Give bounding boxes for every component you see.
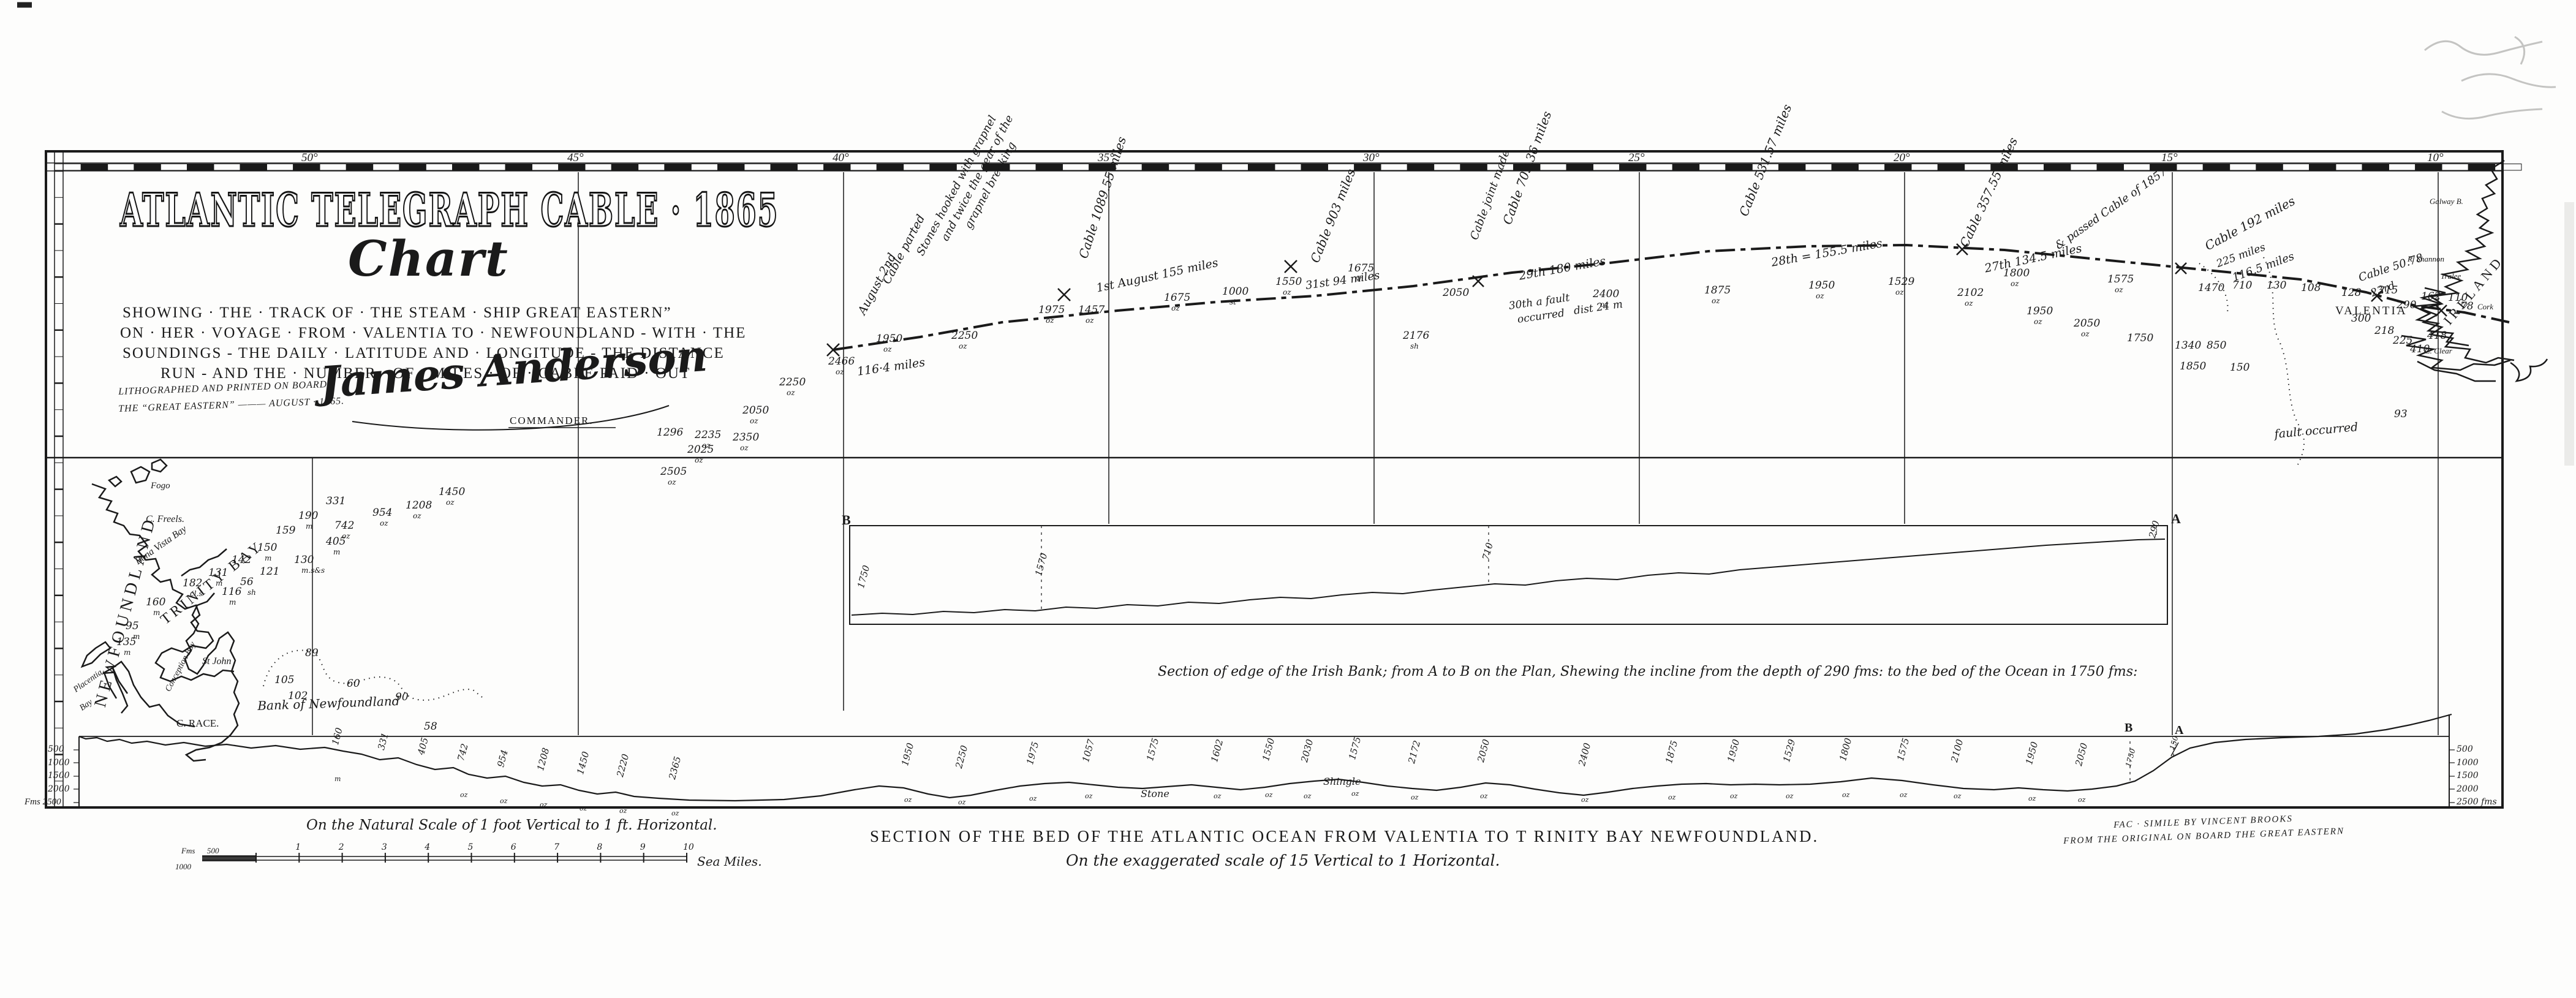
sounding-value: 2466	[828, 357, 855, 367]
sounding-value: 2050	[2074, 319, 2100, 329]
sounding-value: 2400	[1593, 289, 1619, 300]
sounding-value: 93	[2394, 409, 2408, 420]
sounding-value: 121	[260, 567, 279, 577]
sounding-value: 710	[2232, 281, 2252, 291]
inset-point-b: B	[842, 513, 851, 527]
sounding-value: 182	[183, 578, 202, 589]
sounding-value: 1470	[2198, 283, 2224, 293]
scale-tick-number: 8	[597, 843, 602, 852]
place-label: C. Freels.	[146, 515, 184, 524]
profile-right-axis-label: 1000	[2457, 758, 2479, 767]
profile-depth-bottom-type: oz	[1786, 793, 1793, 800]
sounding-value: 1850	[2180, 361, 2206, 372]
sounding-bottom-type: oz	[883, 346, 892, 353]
sounding-bottom-type: oz	[740, 444, 749, 452]
sounding-value: 190	[298, 511, 318, 521]
sounding-value: 1450	[439, 487, 465, 497]
sounding-value: 1208	[406, 501, 432, 511]
scale-tick-number: 3	[382, 843, 387, 852]
profile-depth-bottom-type: oz	[2078, 796, 2085, 803]
longitude-label: 50°	[301, 152, 318, 164]
sounding-value: 142	[232, 555, 251, 565]
sounding-value: 1975	[1038, 305, 1065, 316]
profile-depth-bottom-type: oz	[904, 796, 912, 803]
sounding-value: 1950	[1808, 281, 1835, 291]
irish-bank-inset	[850, 526, 2167, 624]
title-line-3: SHOWING · THE · TRACK OF · THE STEAM · S…	[123, 305, 672, 320]
bank-contours	[263, 257, 2304, 700]
sounding-bottom-type: oz	[695, 456, 703, 464]
chart-title: ATLANTIC TELEGRAPH CABLE · 1865	[120, 187, 779, 233]
sounding-value: 159	[276, 526, 295, 536]
place-label: Galway B.	[2430, 197, 2463, 205]
sounding-bottom-type: cl.s	[190, 590, 203, 597]
newfoundland-coastline	[82, 459, 239, 761]
sounding-value: 290	[2397, 300, 2416, 311]
sounding-value: 1800	[2003, 268, 2030, 279]
sounding-value: 300	[2351, 314, 2371, 324]
sounding-bottom-type: oz	[750, 417, 758, 425]
place-label: Tralee	[2441, 272, 2461, 280]
sounding-bottom-type: oz	[2011, 280, 2019, 287]
sounding-value: 742	[334, 521, 354, 531]
sounding-bottom-type: oz	[702, 442, 711, 449]
inset-caption: Section of edge of the Irish Bank; from …	[1158, 665, 2137, 679]
longitude-label: 15°	[2161, 152, 2178, 164]
scale-fms-label: Fms	[181, 847, 195, 855]
sounding-value: 954	[372, 508, 392, 518]
sounding-bottom-type: m	[333, 548, 340, 556]
sounding-value: 2350	[733, 433, 759, 443]
sounding-bottom-type: oz	[1816, 292, 1824, 300]
sounding-value: 1675	[1164, 293, 1190, 303]
scale-1000-label: 1000	[175, 863, 191, 871]
longitude-label: 25°	[1628, 152, 1645, 164]
sounding-bottom-type: m	[124, 649, 130, 656]
longitude-label: 40°	[833, 152, 849, 164]
sounding-bottom-type: oz	[1895, 289, 1904, 296]
sounding-value: 160	[146, 597, 165, 608]
sounding-bottom-type: m	[265, 554, 271, 562]
exaggerated-scale-caption: On the exaggerated scale of 15 Vertical …	[1066, 853, 1500, 868]
sounding-value: 116	[222, 587, 241, 597]
sounding-bottom-type: m	[306, 523, 312, 530]
sounding-value: 218	[2374, 326, 2394, 336]
sounding-value: 2235	[695, 430, 721, 440]
sounding-bottom-type: oz	[1046, 317, 1054, 324]
sounding-bottom-type: oz	[836, 368, 844, 376]
scale-tick-number: 6	[511, 843, 516, 852]
sounding-value: 150	[2230, 363, 2249, 373]
sounding-value: 95	[126, 621, 139, 632]
profile-right-axis-label: 2000	[2457, 785, 2479, 793]
sounding-value: 1750	[2127, 333, 2153, 344]
scale-tick-number: 7	[554, 843, 559, 852]
sounding-bottom-type: oz	[2081, 330, 2090, 338]
scale-tick-number: 5	[468, 843, 474, 852]
sounding-bottom-type: st	[1229, 298, 1236, 306]
sounding-value: 1457	[1078, 305, 1105, 316]
sounding-value: 1340	[2175, 341, 2201, 351]
sounding-bottom-type: sh	[1410, 342, 1419, 350]
sounding-bottom-type: oz	[446, 499, 455, 506]
profile-depth-bottom-type: oz	[1954, 793, 1961, 800]
sea-miles-label: Sea Miles.	[697, 855, 762, 868]
sounding-value: 2050	[742, 406, 769, 416]
natural-scale-caption: On the Natural Scale of 1 foot Vertical …	[306, 818, 717, 833]
sounding-value: 2505	[660, 467, 687, 477]
sounding-bottom-type: m	[229, 599, 236, 606]
profile-depth-bottom-type: m	[334, 776, 341, 782]
profile-depth-bottom-type: oz	[1581, 796, 1588, 803]
sounding-value: 78	[2460, 301, 2474, 312]
section-title: SECTION OF THE BED OF THE ATLANTIC OCEAN…	[870, 828, 1819, 845]
profile-depth-bottom-type: oz	[1085, 793, 1092, 800]
profile-depth-bottom-type: oz	[1900, 792, 1907, 798]
commander-title: COMMANDER.	[510, 415, 594, 426]
sounding-bottom-type: oz	[1965, 300, 1973, 307]
sounding-bottom-type: oz	[1283, 289, 1291, 296]
longitude-label: 10°	[2427, 152, 2444, 164]
profile-bed-word: Stone	[1141, 789, 1169, 799]
profile-right-axis-label: 2500 fms	[2457, 798, 2497, 806]
sounding-value: 131	[208, 568, 228, 578]
profile-depth-bottom-type: oz	[671, 810, 679, 817]
sounding-value: 1675	[1348, 263, 1374, 274]
longitude-graduation-band	[55, 164, 2521, 171]
profile-depth-bottom-type: oz	[540, 801, 547, 808]
scale-tick-number: 10	[683, 843, 694, 852]
scale-tick-number: 9	[640, 843, 646, 852]
profile-depth-bottom-type: oz	[580, 805, 587, 812]
sounding-value: 89	[305, 648, 319, 659]
cable-track	[833, 245, 2509, 350]
profile-left-axis-label: 1000	[48, 758, 70, 767]
sounding-bottom-type: oz	[2034, 318, 2042, 325]
sounding-bottom-type: oz	[959, 342, 967, 350]
sounding-bottom-type: oz	[668, 478, 676, 486]
longitude-label: 30°	[1363, 152, 1380, 164]
sounding-bottom-type: sh	[247, 589, 256, 596]
sounding-value: 2102	[1957, 288, 1984, 298]
place-label: C. RACE.	[176, 718, 219, 728]
sounding-bottom-type: oz	[787, 389, 795, 396]
sounding-value: 215	[2378, 285, 2398, 296]
sounding-value: 2050	[1443, 288, 1469, 298]
sounding-value: 1296	[657, 428, 683, 438]
profile-depth-bottom-type: oz	[1265, 792, 1272, 798]
sounding-value: 331	[326, 496, 346, 507]
place-label: St John	[202, 657, 232, 667]
profile-left-axis-label: 1500	[48, 771, 70, 780]
sounding-bottom-type: m	[153, 609, 160, 616]
sounding-value: 1000	[1222, 287, 1248, 297]
sounding-value: 1550	[1275, 277, 1302, 287]
scale-tick-number: 2	[339, 843, 344, 852]
sounding-value: 102	[288, 691, 308, 701]
chart-subtitle: Chart	[348, 234, 509, 283]
profile-depth-bottom-type: oz	[1351, 790, 1359, 797]
profile-point-a: A	[2175, 724, 2183, 736]
profile-depth-bottom-type: oz	[1304, 793, 1311, 800]
sea-miles-scale-bar	[202, 853, 687, 863]
profile-depth-bottom-type: oz	[460, 792, 467, 798]
sounding-value: 1875	[1704, 285, 1731, 296]
profile-depth-bottom-type: oz	[1730, 793, 1737, 800]
sounding-value: 105	[274, 675, 294, 686]
profile-depth-bottom-type: oz	[1842, 792, 1849, 798]
sounding-value: 56	[240, 577, 254, 588]
sounding-value: 1950	[2026, 306, 2053, 317]
longitude-label: 45°	[567, 152, 584, 164]
sounding-bottom-type: oz	[380, 520, 388, 527]
sounding-value: 60	[347, 679, 360, 689]
profile-left-axis-label: 2000	[48, 785, 70, 793]
sounding-value: 135	[116, 637, 136, 648]
scale-500-label: 500	[207, 847, 219, 855]
profile-depth-bottom-type: oz	[958, 799, 965, 806]
profile-right-axis-label: 1500	[2457, 771, 2479, 780]
sounding-value: 2250	[951, 331, 978, 341]
pencil-scribbles	[2425, 37, 2556, 119]
sounding-bottom-type: sh	[1355, 275, 1364, 282]
meridian-lines	[312, 172, 2438, 735]
sounding-value: 1575	[2107, 274, 2134, 285]
sounding-value: 418	[2427, 331, 2447, 341]
profile-depth-bottom-type: oz	[1668, 794, 1675, 801]
longitude-label: 20°	[1894, 152, 1910, 164]
sounding-value: 405	[326, 537, 346, 547]
scale-tick-number: 4	[425, 843, 430, 852]
profile-depth-bottom-type: oz	[619, 807, 627, 814]
inset-point-a: A	[2171, 512, 2181, 526]
sounding-bottom-type: oz	[1712, 297, 1720, 304]
sounding-bottom-type: oz	[1086, 317, 1094, 324]
chart-sheet: ATLANTIC TELEGRAPH CABLE · 1865 Chart SH…	[0, 0, 2576, 998]
sounding-value: 162	[2421, 292, 2441, 302]
sounding-value: 2176	[1403, 331, 1429, 341]
sounding-value: 130	[294, 555, 314, 565]
sounding-value: 2250	[779, 377, 806, 388]
scale-tick-number: 1	[295, 843, 301, 852]
sounding-value: 410	[2410, 344, 2430, 355]
sounding-bottom-type: m.s&s	[301, 567, 325, 574]
profile-depth-bottom-type: oz	[1411, 794, 1418, 801]
sounding-value: 150	[257, 543, 277, 553]
sounding-bottom-type: oz	[2115, 286, 2123, 293]
profile-depth-bottom-type: oz	[2028, 795, 2036, 802]
profile-depth-bottom-type: oz	[500, 798, 507, 804]
sounding-bottom-type: oz	[413, 512, 421, 520]
profile-right-axis-label: 500	[2457, 745, 2473, 754]
profile-depth-bottom-type: oz	[1480, 793, 1487, 800]
sounding-value: 108	[2301, 283, 2321, 293]
profile-bed-word: Shingle	[1323, 777, 1361, 787]
place-label: Fogo	[151, 482, 170, 491]
sounding-value: 1950	[876, 334, 902, 344]
profile-point-b: B	[2125, 722, 2132, 734]
profile-left-axis-unit: Fms 2500	[25, 798, 61, 807]
profile-depth-bottom-type: oz	[1029, 795, 1037, 802]
place-label: Cork	[2477, 303, 2493, 311]
sounding-value: 130	[2267, 281, 2286, 291]
sounding-bottom-type: oz	[1600, 301, 1609, 308]
sounding-value: 90	[395, 692, 409, 703]
profile-left-axis-label: 500	[48, 745, 64, 754]
sounding-bottom-type: oz	[1171, 304, 1180, 312]
sounding-value: 128	[2341, 288, 2361, 298]
sounding-value: 1529	[1888, 277, 1914, 287]
profile-depth-bottom-type: oz	[1214, 793, 1221, 800]
sounding-value: 850	[2207, 341, 2226, 351]
sounding-value: 58	[424, 722, 437, 732]
latitude-graduation-band	[55, 171, 63, 781]
